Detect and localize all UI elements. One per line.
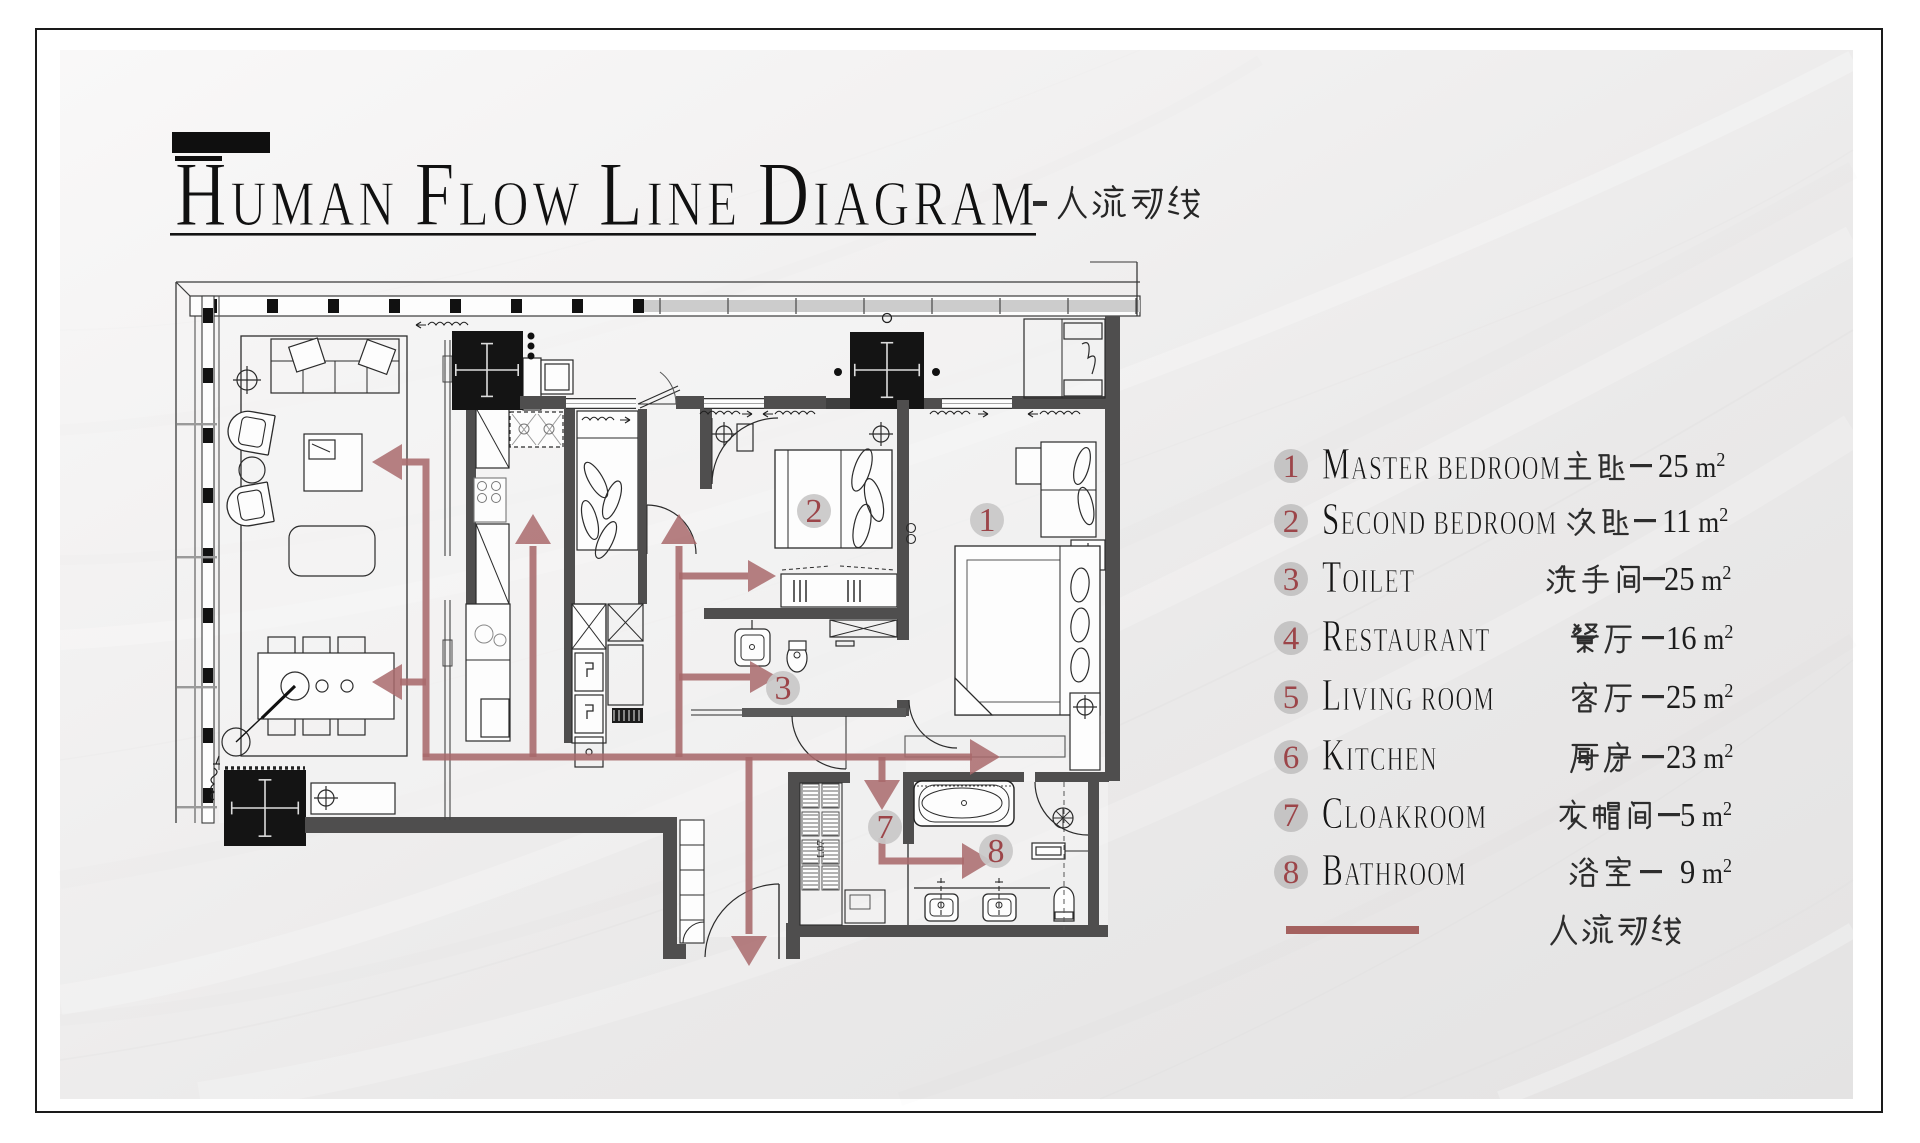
svg-text:4: 4: [1283, 621, 1300, 657]
svg-text:L07: L07: [815, 840, 827, 858]
svg-text:11 m2: 11 m2: [1662, 502, 1728, 540]
svg-text:25 m2: 25 m2: [1666, 678, 1733, 716]
svg-text:16 m2: 16 m2: [1666, 619, 1733, 657]
svg-text:3: 3: [1283, 562, 1300, 598]
svg-text:2: 2: [1283, 504, 1300, 540]
svg-text:1: 1: [979, 502, 996, 539]
svg-text:6: 6: [1283, 740, 1300, 776]
svg-text:23 m2: 23 m2: [1666, 738, 1733, 776]
svg-text:1: 1: [1283, 449, 1300, 485]
svg-text:7: 7: [1283, 798, 1300, 834]
svg-text:8: 8: [1283, 855, 1300, 891]
svg-text:3: 3: [775, 670, 792, 707]
svg-text:25 m2: 25 m2: [1658, 447, 1725, 485]
svg-text:7: 7: [877, 809, 894, 846]
svg-text:5: 5: [1283, 680, 1300, 716]
svg-text:25 m2: 25 m2: [1664, 560, 1731, 598]
svg-text:8: 8: [988, 833, 1005, 870]
svg-text:2: 2: [806, 493, 823, 530]
